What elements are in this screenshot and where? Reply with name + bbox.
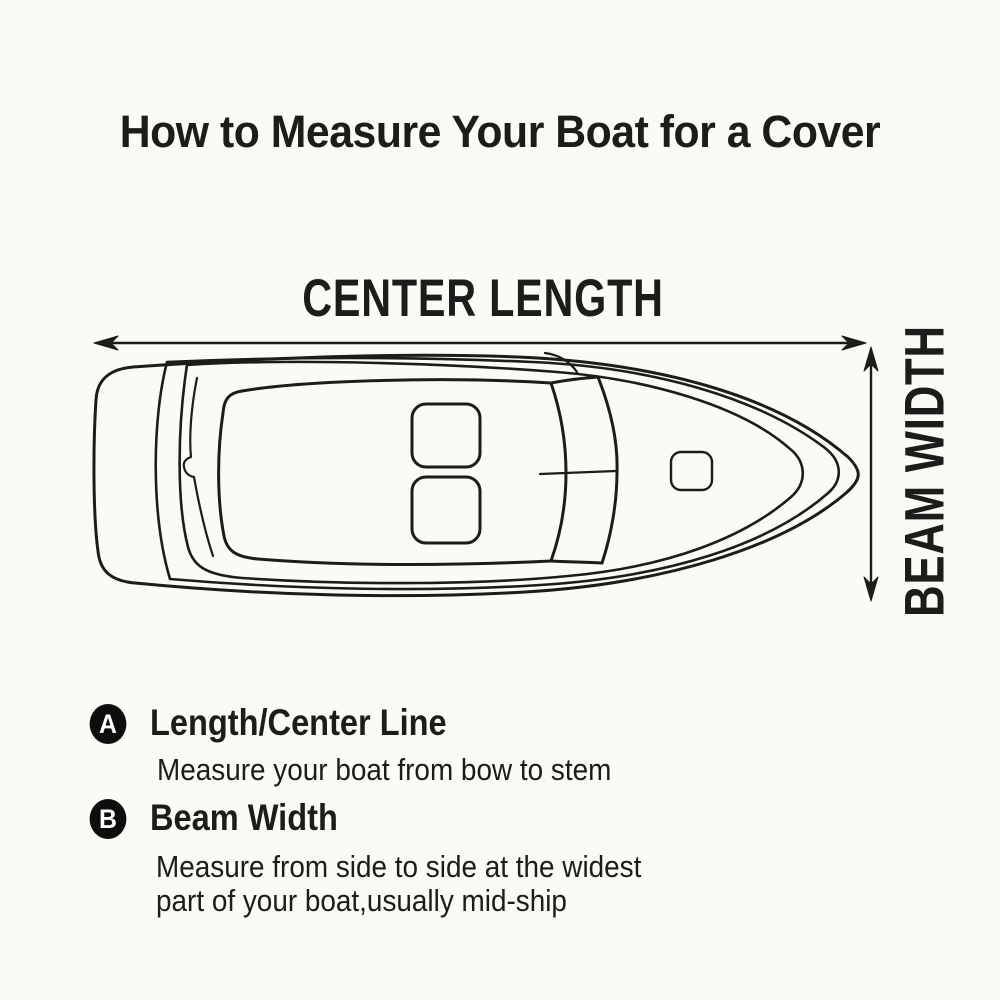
legend-b-line2: part of your boat,usually mid-ship [156, 884, 641, 918]
boat-cover-measure-infographic: How to Measure Your Boat for a Cover CEN… [0, 0, 1000, 1000]
legend-b-line1: Measure from side to side at the widest [156, 850, 641, 884]
legend: A Length/Center Line Measure your boat f… [0, 0, 1000, 1000]
legend-b-heading: Beam Width [150, 797, 338, 839]
badge-a: A [90, 704, 127, 744]
legend-a-line1: Measure your boat from bow to stem [157, 753, 611, 787]
legend-b-text: Measure from side to side at the widest … [156, 850, 641, 918]
legend-a-text: Measure your boat from bow to stem [157, 753, 611, 787]
legend-a-heading: Length/Center Line [150, 702, 447, 744]
badge-b: B [90, 799, 127, 839]
